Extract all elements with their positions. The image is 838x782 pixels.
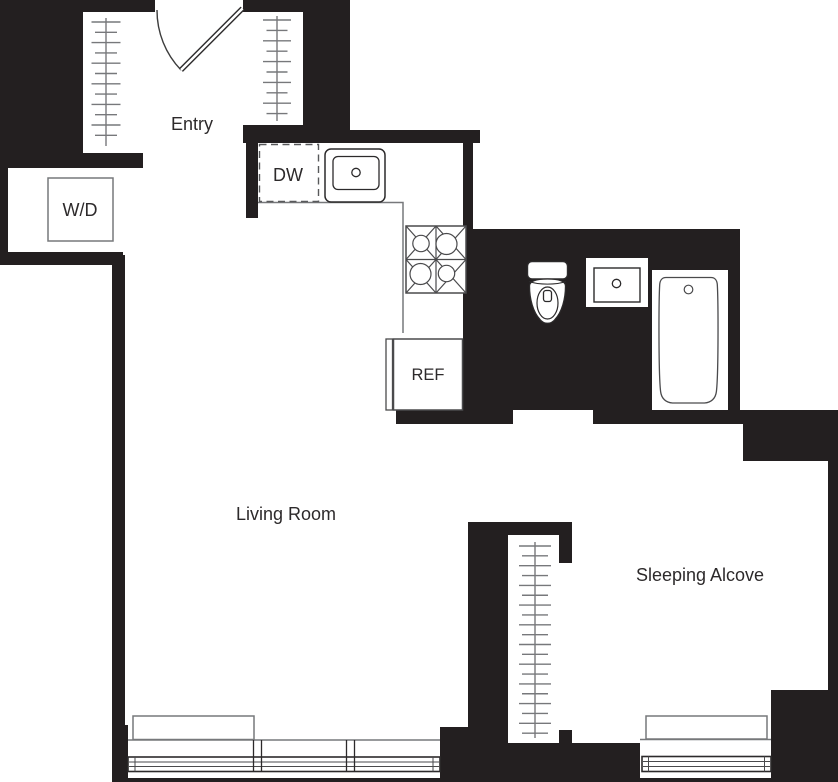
wall-segment [828,461,838,691]
washer-dryer-label: W/D [63,200,98,220]
wall-segment [463,133,473,229]
entry-label: Entry [171,114,213,134]
door-leaf-core [181,9,243,71]
wall-segment [112,255,125,782]
entry-door [157,9,243,71]
wall-segment [396,410,513,424]
wall-segment [0,12,8,265]
kitchen-sink-icon [325,149,385,202]
counter-edge [258,203,403,334]
wall-segment [593,410,743,424]
radiator [133,716,254,740]
wall-segment [743,410,838,461]
wall-segment [468,522,508,782]
living-room-label: Living Room [236,504,336,524]
wall-segment [112,725,128,782]
wall-segment [112,778,838,782]
dishwasher-label: DW [273,165,303,185]
entry-closet-left-shelving-icon [92,18,121,146]
stove-icon [406,226,466,293]
radiator [646,716,767,739]
wall-segment [508,743,640,782]
washer-dryer: W/D [48,178,113,241]
wall-segment [246,143,258,218]
bathroom-sink-icon [594,268,640,302]
refrigerator: REF [386,339,463,410]
wall-segment [246,130,480,143]
wall-segment [559,535,572,563]
kitchen: DW REF [258,145,466,411]
living-room-window [128,740,440,772]
wall-segment [440,727,468,782]
alcove-closet-shelving-icon [519,542,551,738]
door-swing-arc [157,10,181,70]
wall-segment [0,0,83,153]
wall-segment [0,252,123,265]
floor-plan-canvas: W/D DW REF [0,0,838,782]
wall-segment [771,690,838,782]
wall-segment [0,153,143,168]
refrigerator-label: REF [412,366,445,384]
alcove-window [642,757,771,772]
bathroom-door-opening [513,410,593,424]
bathtub-icon [659,278,718,404]
wall-segment [559,730,572,743]
sleeping-alcove-label: Sleeping Alcove [636,565,764,585]
entry-closet-right-interior [243,12,303,125]
